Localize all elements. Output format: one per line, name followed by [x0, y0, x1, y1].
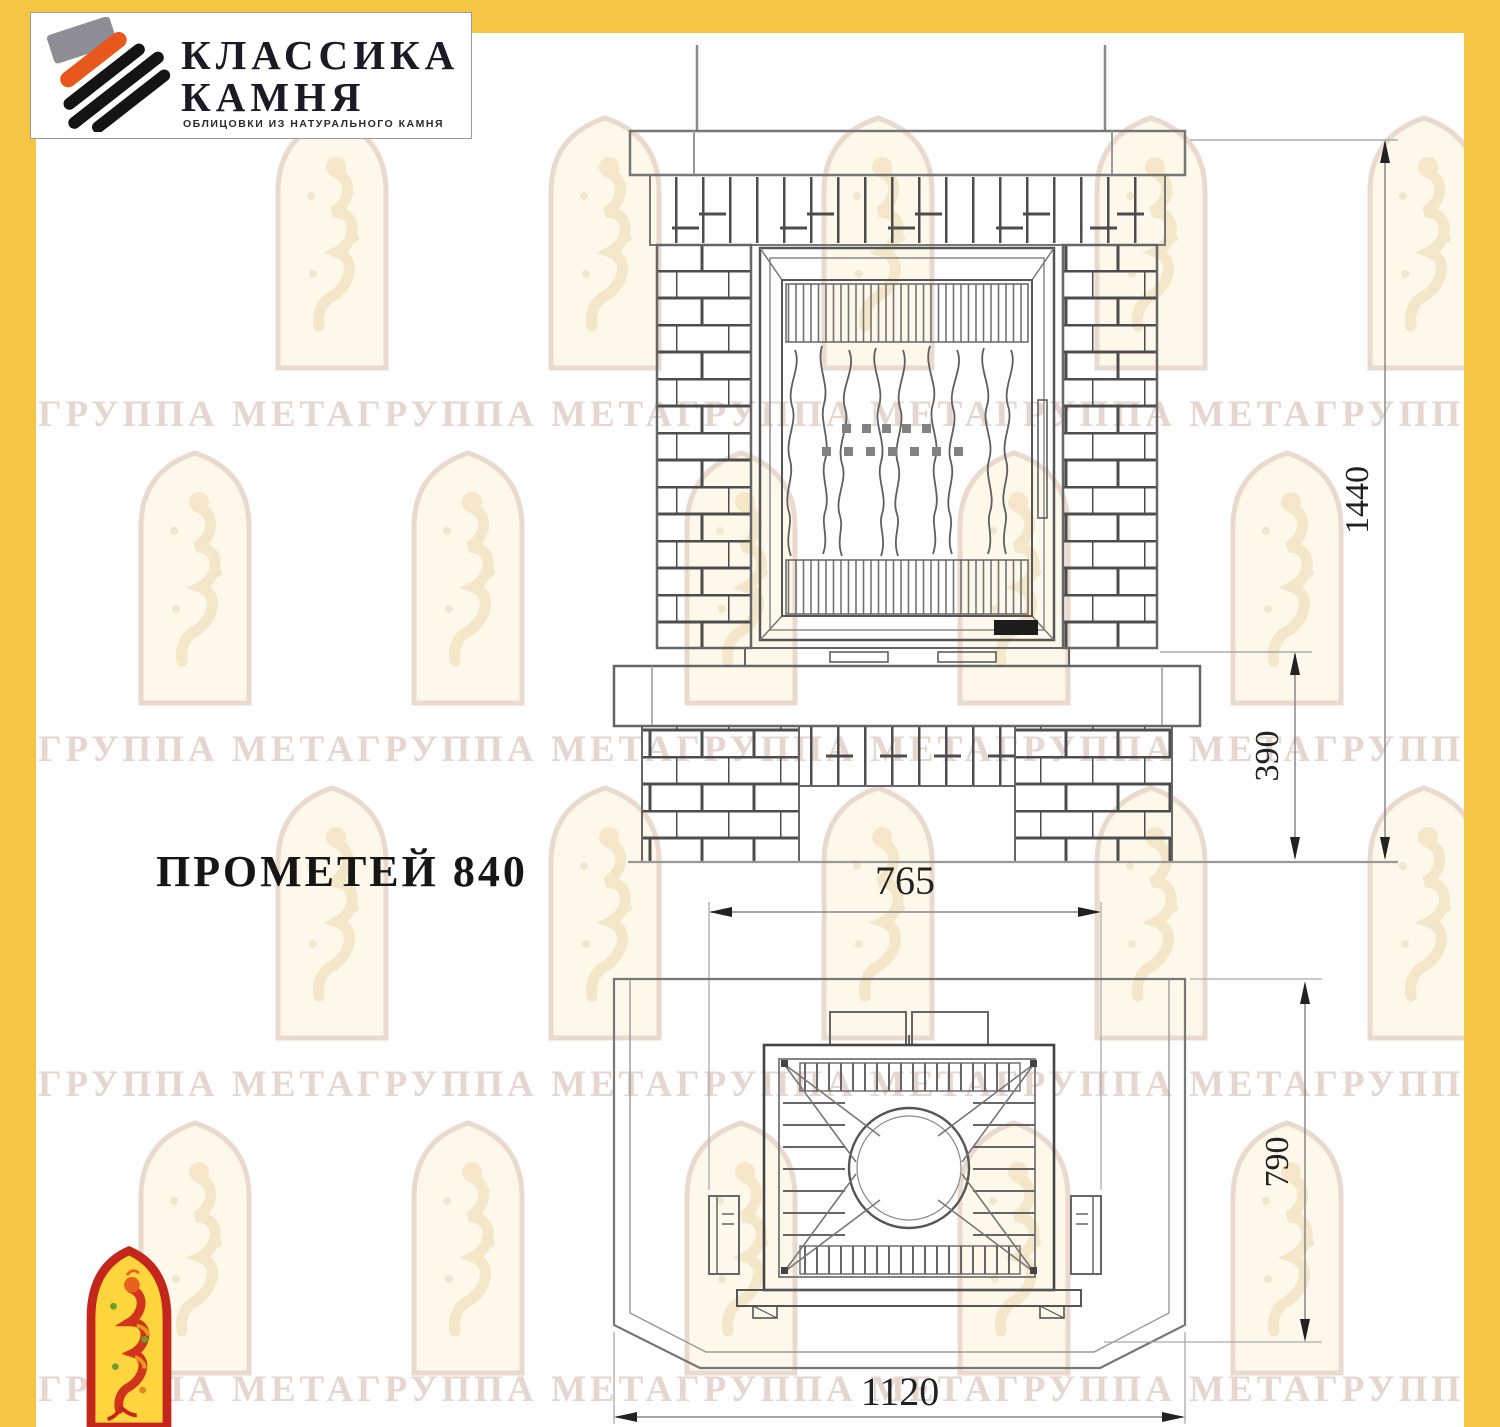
dim-height-total: 1440 [1190, 140, 1398, 860]
dim-label-1440: 1440 [1339, 466, 1376, 534]
company-logo-icon [35, 17, 180, 132]
fireplace-technical-drawing: 1440 390 765 [0, 0, 1500, 1427]
insert-plan [709, 1045, 1101, 1318]
rib-hatch [783, 1103, 1035, 1235]
product-title: ПРОМЕТЕЙ 840 [156, 846, 528, 897]
page-canvas: ГРУППА МЕТАГРУППА МЕТАГРУППА МЕТАГРУППА … [0, 0, 1500, 1427]
dim-base-height: 390 [1160, 652, 1312, 860]
dim-label-1120: 1120 [861, 1369, 940, 1414]
plan-view: 765 [614, 858, 1322, 1424]
firebird-emblem-icon [85, 1242, 173, 1427]
dim-label-390: 390 [1249, 731, 1286, 782]
door-handle [1038, 400, 1047, 518]
dim-total-width: 1120 [614, 1332, 1185, 1424]
flue-pipes [697, 45, 1105, 131]
flames [787, 346, 1013, 556]
dim-depth: 790 [1104, 979, 1322, 1342]
firebox-insert [760, 248, 1054, 640]
latch-block [994, 620, 1038, 635]
company-logo-box: КЛАССИКА КАМНЯ ОБЛИЦОВКИ ИЗ НАТУРАЛЬНОГО… [30, 12, 472, 139]
logo-tagline: ОБЛИЦОВКИ ИЗ НАТУРАЛЬНОГО КАМНЯ [183, 118, 444, 130]
logo-name-line1: КЛАССИКА [181, 35, 459, 76]
dim-label-765: 765 [875, 858, 935, 903]
logo-name-line2: КАМНЯ [181, 77, 366, 118]
front-view: 1440 390 [614, 45, 1398, 862]
dim-label-790: 790 [1259, 1137, 1296, 1188]
